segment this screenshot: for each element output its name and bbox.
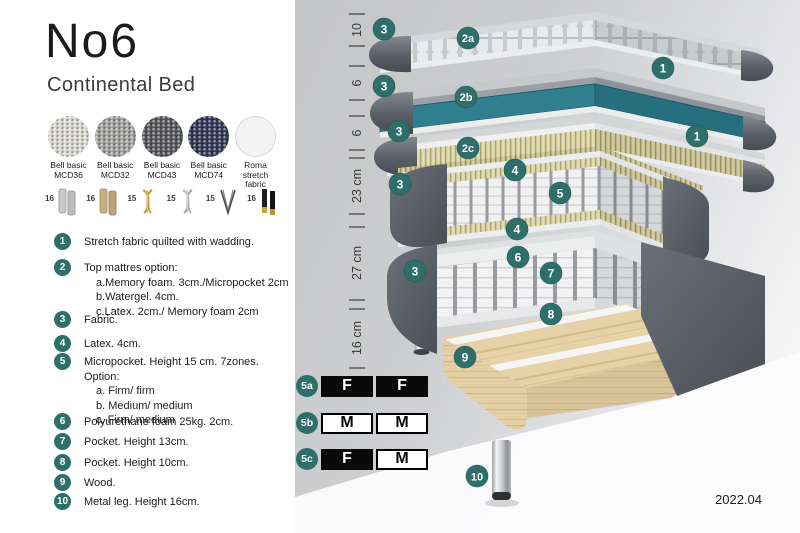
firmness-cell: F — [376, 376, 428, 397]
badge-10: 10 — [466, 465, 488, 487]
measurement-label: 16 cm — [350, 321, 364, 355]
svg-text:1: 1 — [660, 62, 667, 76]
badge-7: 7 — [540, 262, 562, 284]
firmness-cell: M — [321, 413, 373, 434]
legend-number-badge: 7 — [54, 433, 71, 450]
firmness-cell: M — [376, 413, 428, 434]
legend-number-badge: 3 — [54, 311, 71, 328]
svg-text:2c: 2c — [462, 143, 474, 155]
info-panel: No6 Continental Bed Bell basicMCD36 Bell… — [0, 0, 295, 533]
firmness-row-5a: 5a F F — [296, 375, 428, 397]
legend-number-badge: 10 — [54, 493, 71, 510]
legend-number-badge: 2 — [54, 259, 71, 276]
legend-number-badge: 8 — [54, 454, 71, 471]
legend-item-4: 4 Latex. 4cm. — [54, 335, 141, 352]
svg-text:7: 7 — [548, 267, 555, 281]
firmness-cell: F — [321, 376, 373, 397]
badge-2c: 2c — [457, 137, 479, 159]
badge-1: 1 — [686, 125, 708, 147]
version-label: 2022.04 — [715, 492, 762, 507]
badge-5: 5 — [549, 182, 571, 204]
svg-text:2a: 2a — [462, 33, 475, 45]
badge-4: 4 — [504, 159, 526, 181]
measurement-labels: 10 6 6 23 cm 27 cm 16 cm — [350, 23, 364, 355]
badge-1: 1 — [652, 57, 674, 79]
svg-text:9: 9 — [462, 351, 469, 365]
firmness-badge: 5c — [296, 448, 318, 470]
firmness-row-5c: 5c F M — [296, 448, 428, 470]
layer-topper-2a — [369, 12, 773, 81]
svg-text:4: 4 — [514, 223, 521, 237]
svg-text:1: 1 — [694, 130, 701, 144]
legend-list: 1 Stretch fabric quilted with wadding. 2… — [0, 0, 295, 533]
legend-number-badge: 1 — [54, 233, 71, 250]
svg-text:2b: 2b — [460, 92, 473, 104]
svg-text:10: 10 — [471, 472, 483, 484]
badge-2a: 2a — [457, 27, 479, 49]
legend-item-1: 1 Stretch fabric quilted with wadding. — [54, 233, 254, 250]
badge-4: 4 — [506, 218, 528, 240]
measurement-label: 6 — [350, 129, 364, 136]
legend-item-3: 3 Fabric. — [54, 311, 118, 328]
svg-text:3: 3 — [381, 23, 388, 37]
measurement-label: 10 — [350, 23, 364, 37]
badge-9: 9 — [454, 346, 476, 368]
firmness-badge: 5b — [296, 412, 318, 434]
firmness-cell: M — [376, 449, 428, 470]
svg-text:3: 3 — [412, 265, 419, 279]
badge-3: 3 — [404, 260, 426, 282]
legend-item-10: 10 Metal leg. Height 16cm. — [54, 493, 200, 510]
svg-text:6: 6 — [515, 251, 522, 265]
legend-item-9: 9 Wood. — [54, 474, 116, 491]
firmness-badge: 5a — [296, 375, 318, 397]
firmness-row-5b: 5b M M — [296, 412, 428, 434]
svg-text:5: 5 — [557, 187, 564, 201]
badge-3: 3 — [373, 18, 395, 40]
badge-3: 3 — [373, 75, 395, 97]
svg-text:8: 8 — [548, 308, 555, 322]
legend-number-badge: 5 — [54, 353, 71, 370]
legend-number-badge: 6 — [54, 413, 71, 430]
measurement-label: 27 cm — [350, 246, 364, 280]
badge-3: 3 — [389, 173, 411, 195]
badge-3: 3 — [388, 120, 410, 142]
svg-text:3: 3 — [397, 178, 404, 192]
svg-text:3: 3 — [396, 125, 403, 139]
measurement-label: 23 cm — [350, 169, 364, 203]
firmness-cell: F — [321, 449, 373, 470]
legend-item-2: 2 Top mattres option: a.Memory foam. 3cm… — [54, 259, 289, 319]
legend-item-6: 6 Polyurethane foam 25kg. 2cm. — [54, 413, 233, 430]
legend-number-badge: 9 — [54, 474, 71, 491]
svg-text:4: 4 — [512, 164, 519, 178]
legend-item-7: 7 Pocket. Height 13cm. — [54, 433, 189, 450]
measurement-label: 6 — [350, 79, 364, 86]
badge-8: 8 — [540, 303, 562, 325]
badge-2b: 2b — [455, 86, 477, 108]
legend-item-8: 8 Pocket. Height 10cm. — [54, 454, 189, 471]
svg-text:3: 3 — [381, 80, 388, 94]
badge-6: 6 — [507, 246, 529, 268]
legend-number-badge: 4 — [54, 335, 71, 352]
